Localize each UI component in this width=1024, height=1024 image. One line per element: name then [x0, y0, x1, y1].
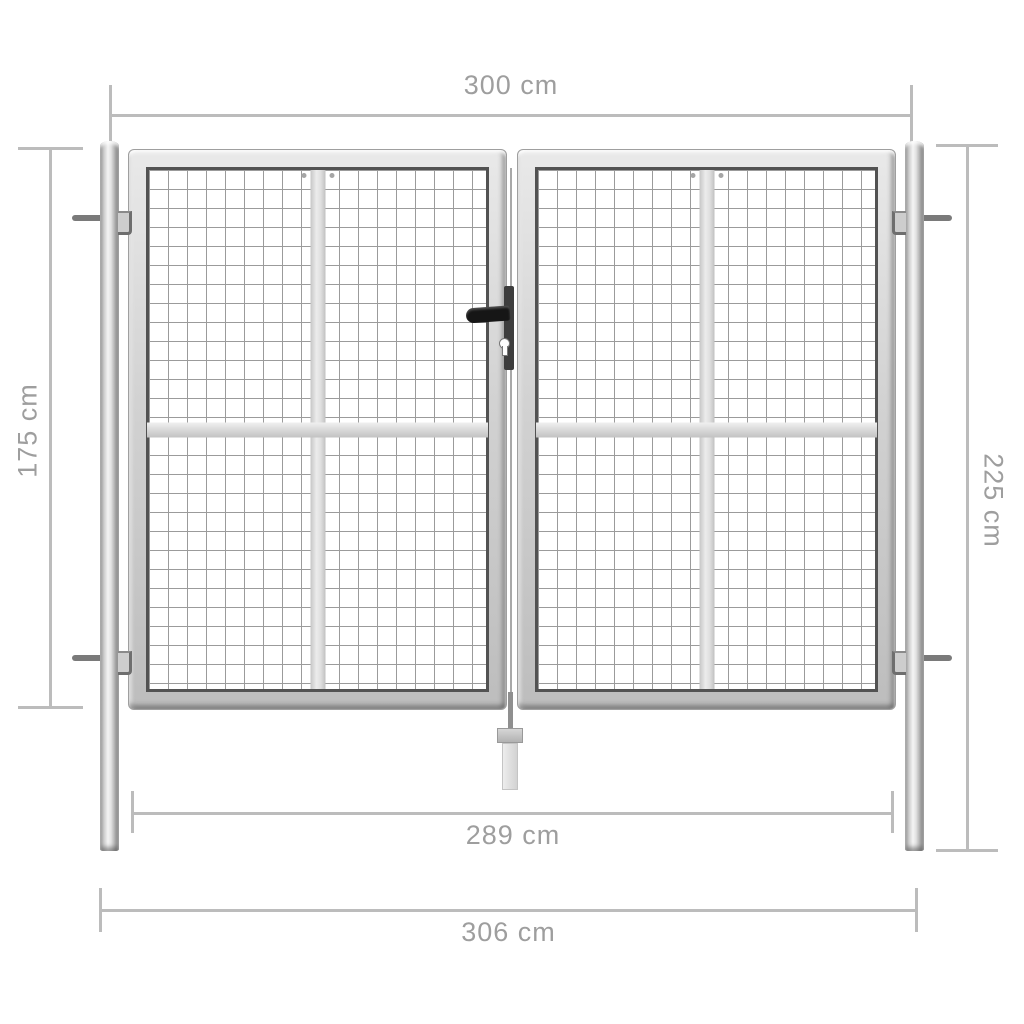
dimension-line: [49, 148, 52, 708]
hinge-bracket-bottom-right: [892, 651, 906, 675]
handle-icon: [466, 305, 511, 323]
drop-bolt-sleeve: [497, 728, 523, 743]
left-mesh-panel: [146, 167, 489, 692]
dimension-tick: [18, 706, 83, 709]
dimension-line: [110, 114, 912, 117]
inner-width-label: 289 cm: [133, 820, 893, 851]
dimension-tick: [936, 849, 998, 852]
drop-bolt-lower-rod: [502, 743, 518, 790]
dimension-tick: [18, 147, 83, 150]
keyhole-icon: [499, 338, 510, 349]
dimension-tick: [910, 85, 913, 145]
left-middle-rail: [147, 422, 488, 437]
dimension-line: [100, 909, 917, 912]
left-post: [100, 141, 119, 851]
right-mesh-panel: [535, 167, 878, 692]
hinge-bracket-top-right: [892, 211, 906, 235]
top-width-label: 300 cm: [110, 70, 912, 101]
dimension-tick: [936, 144, 998, 147]
dimension-line: [133, 812, 893, 815]
hinge-pin-bottom-right: [920, 655, 952, 661]
leaf-gap-line: [510, 168, 512, 692]
hinge-bracket-bottom-left: [118, 651, 132, 675]
outer-width-label: 306 cm: [100, 917, 917, 948]
drop-bolt-rod: [508, 692, 513, 732]
hinge-pin-top-right: [920, 215, 952, 221]
dimension-tick: [109, 85, 112, 145]
right-post: [905, 141, 924, 851]
gate-dimension-diagram: 300 cm 175 cm 225 cm 289 cm 306 cm: [0, 0, 1024, 1024]
left-gate-leaf: [128, 149, 507, 710]
dimension-line: [966, 145, 969, 851]
hinge-bracket-top-left: [118, 211, 132, 235]
right-gate-leaf: [517, 149, 896, 710]
lock-plate: [504, 286, 514, 370]
right-middle-rail: [536, 422, 877, 437]
post-height-label: 225 cm: [978, 441, 1009, 561]
gate-height-label: 175 cm: [13, 371, 44, 491]
